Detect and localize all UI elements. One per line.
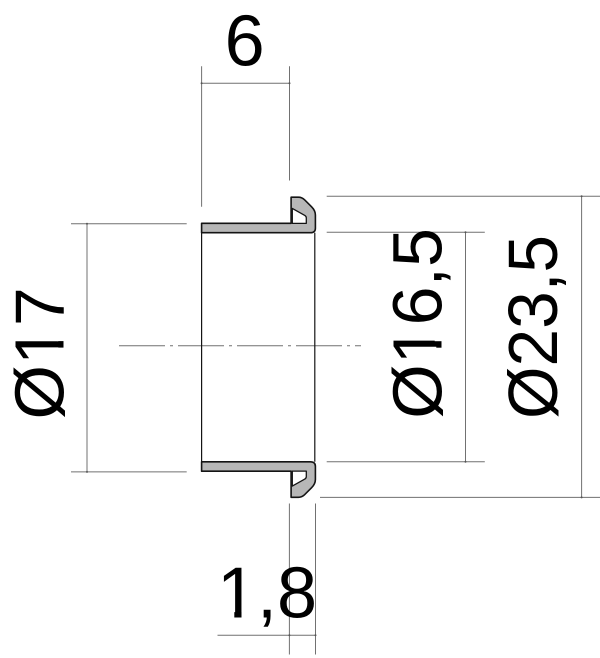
svg-text:Ø16,5: Ø16,5: [379, 228, 457, 419]
svg-text:Ø23,5: Ø23,5: [494, 235, 572, 419]
svg-text:1,8: 1,8: [217, 554, 317, 634]
svg-text:6: 6: [225, 2, 265, 82]
svg-text:Ø17: Ø17: [1, 287, 79, 419]
